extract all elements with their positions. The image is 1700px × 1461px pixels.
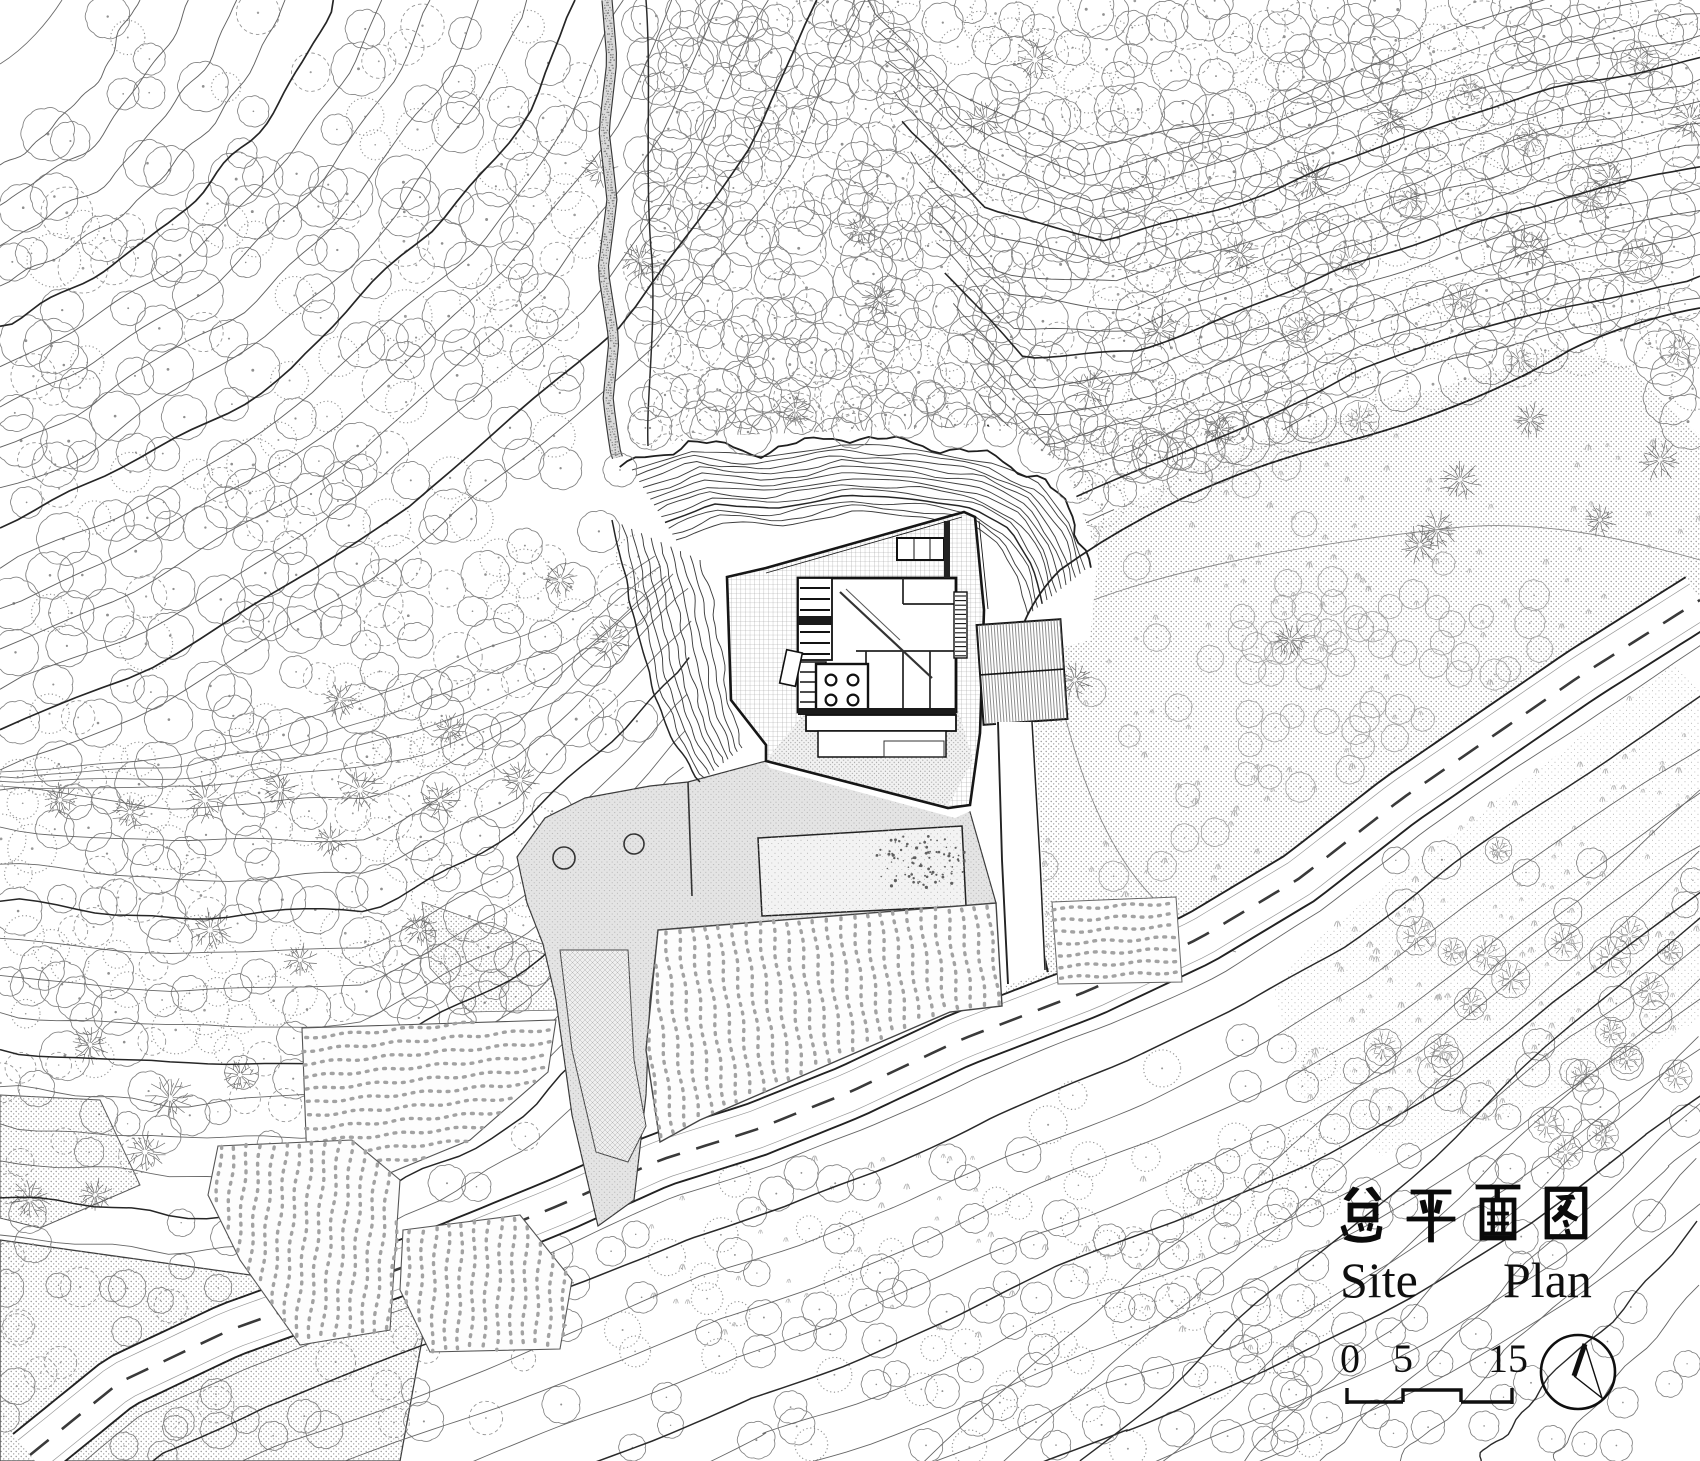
svg-text:0: 0: [1340, 1336, 1360, 1381]
svg-text:Site: Site: [1340, 1252, 1418, 1308]
svg-text:5: 5: [1393, 1336, 1413, 1381]
svg-text:15: 15: [1488, 1336, 1528, 1381]
svg-text:Plan: Plan: [1503, 1252, 1592, 1308]
